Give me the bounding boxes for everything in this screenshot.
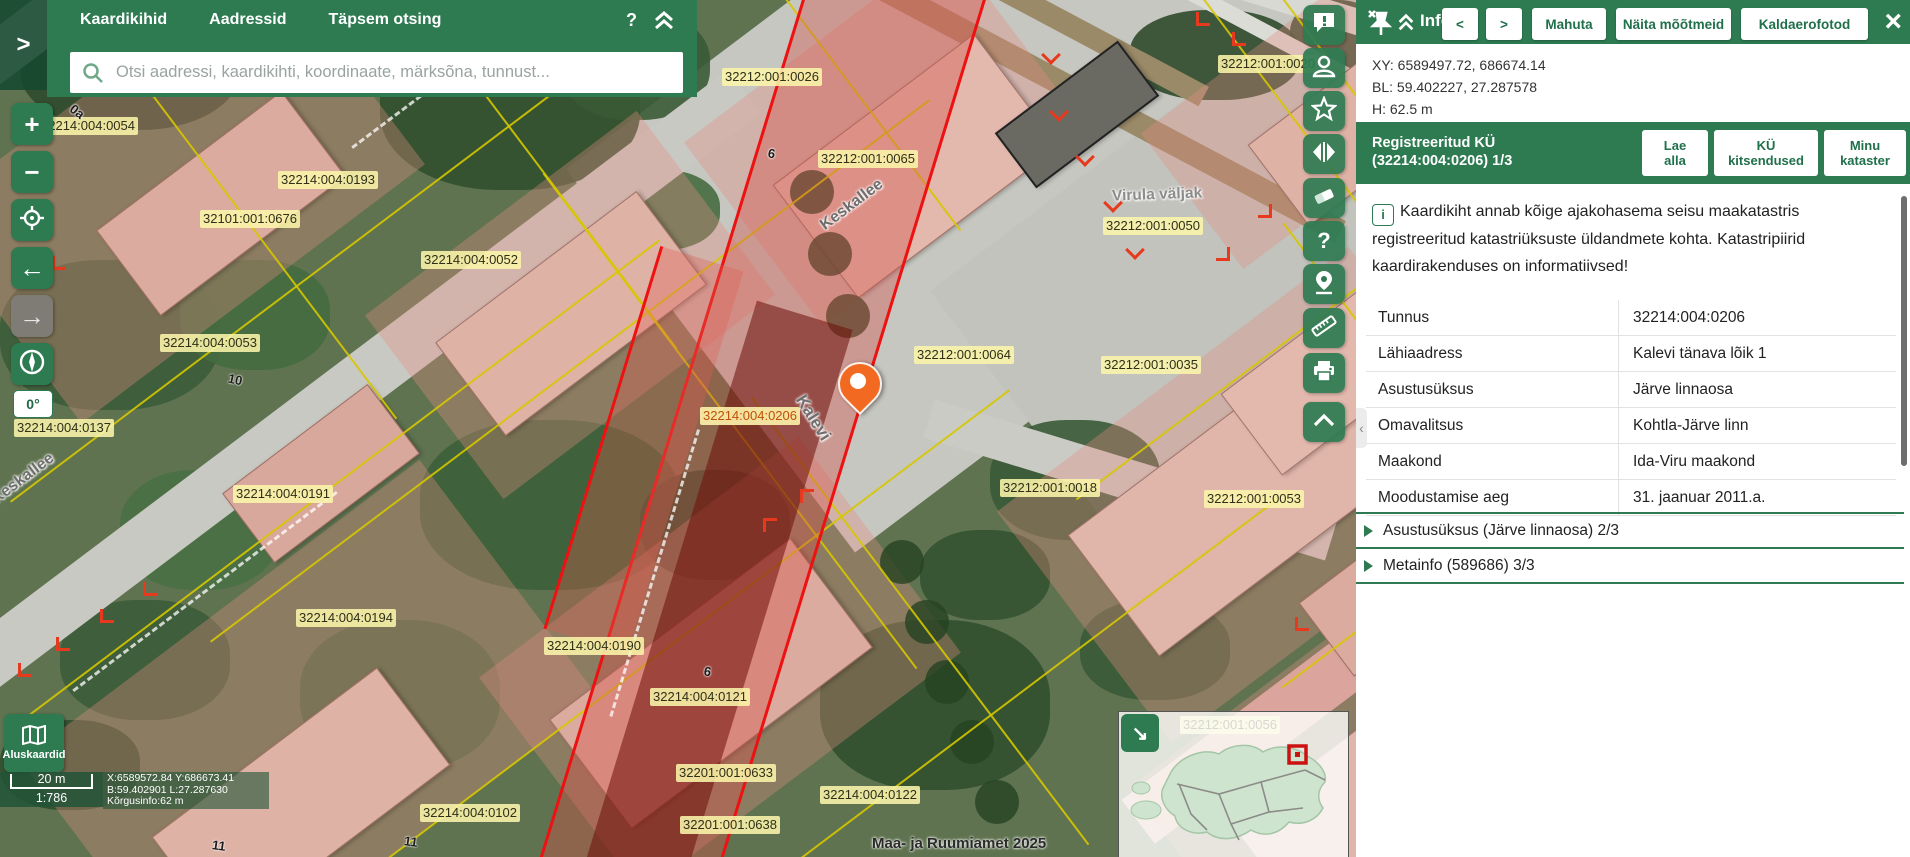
zoom-out-button[interactable]: − [11,151,53,193]
collapsed-section-row[interactable]: Metainfo (589686) 3/3 [1356,549,1904,584]
attribute-label: Tunnus [1366,309,1618,327]
search-icon [82,62,104,84]
table-row: OmavalitsusKohtla-Järve linn [1366,408,1896,444]
result-section-header: Registreeritud KÜ (32214:004:0206) 1/3 L… [1356,122,1910,184]
bookmarks-icon [1311,96,1337,127]
scale-ratio: 1:786 [0,791,103,805]
measure-icon [1310,312,1338,345]
close-panel-button[interactable]: × [1884,2,1902,42]
section-label: Metainfo (589686) 3/3 [1383,557,1535,575]
compass-icon [18,348,46,381]
table-row: AsustusüksusJärve linnaosa [1366,372,1896,408]
parcel-label: 32214:004:0191 [233,485,333,503]
direction-arrow [143,582,157,596]
k-kitsendused-button[interactable]: KÜkitsendused [1714,130,1818,176]
parcel-label: 32212:001:0050 [1103,217,1203,235]
collapse-nav-button[interactable] [653,10,675,37]
info-panel: Info < > MahutaNäita mõõtmeidKaldaerofot… [1356,0,1910,857]
parcel-label: 32212:001:0035 [1101,356,1201,374]
help-button[interactable]: ? [1303,221,1345,261]
result-title: Registreeritud KÜ (32214:004:0206) 1/3 [1372,134,1512,170]
feedback-button[interactable] [1303,5,1345,45]
info-panel-header: Info < > MahutaNäita mõõtmeidKaldaerofot… [1356,0,1910,44]
table-row: MaakondIda-Viru maakond [1366,444,1896,480]
collapsed-section-row[interactable]: Asustusüksus (Järve linnaosa) 2/3 [1356,512,1904,549]
point-info-icon [1311,269,1337,300]
attribute-label: Lähiaadress [1366,345,1618,363]
direction-arrow [1232,32,1246,46]
parcel-label: 32214:004:0122 [820,786,920,804]
user-icon [1311,53,1337,84]
panel-scrollbar[interactable] [1901,196,1907,466]
layer-info-note: iKaardikiht annab kõige ajakohasema seis… [1372,198,1882,280]
attributes-table: Tunnus32214:004:0206LähiaadressKalevi tä… [1366,300,1896,516]
section-label: Asustusüksus (Järve linnaosa) 2/3 [1383,522,1619,540]
history-forward-icon: → [19,303,45,329]
history-back-button[interactable]: ← [11,247,53,289]
map-attribution: Maa- ja Ruumiamet 2025 [872,835,1046,852]
zoom-in-button[interactable]: + [11,103,53,145]
point-info-button[interactable] [1303,264,1345,304]
direction-arrow [100,609,114,623]
chevron-right-icon: > [16,31,30,59]
info-icon: i [1372,204,1394,226]
zoom-out-icon: − [24,159,39,185]
main-menu: KaardikihidAadressidTäpsem otsing [47,0,697,29]
street-name: Keskallee [0,450,58,509]
collapse-all-icon[interactable] [1396,12,1416,32]
parcel-label: 32214:004:0194 [296,609,396,627]
näita-mõõtmeid-button[interactable]: Näita mõõtmeid [1616,8,1731,40]
parcel-label: 32101:001:0676 [200,210,300,228]
direction-arrow [52,256,66,270]
tree [925,660,969,704]
direction-arrow [800,489,814,503]
attribute-value: 31. jaanuar 2011.a. [1618,480,1896,515]
table-row: Moodustamise aeg31. jaanuar 2011.a. [1366,480,1896,516]
unpin-icon[interactable] [1366,9,1394,37]
basemap-button[interactable]: Aluskaardid [4,714,64,772]
attribute-label: Asustusüksus [1366,381,1618,399]
tree [975,780,1019,824]
basemap-label: Aluskaardid [3,749,66,761]
parcel-label: 32212:001:0018 [1000,479,1100,497]
direction-arrow [1216,247,1230,261]
compare-icon [1311,139,1337,170]
attribute-label: Omavalitsus [1366,417,1618,435]
direction-arrow [56,637,70,651]
place-name: Virula väljak [1112,184,1203,205]
parcel-label: 32212:001:0065 [818,150,918,168]
locate-icon [19,205,45,236]
history-back-icon: ← [19,255,45,281]
menu-item-kaardikihid[interactable]: Kaardikihid [80,11,167,29]
attribute-value: Kalevi tänava lõik 1 [1618,336,1896,371]
direction-arrow [763,518,777,532]
prev-result-button[interactable]: < [1442,8,1478,40]
search-input[interactable] [114,62,683,83]
attribute-value: 32214:004:0206 [1618,300,1896,335]
help-icon: ? [1317,228,1330,254]
parcel-label: 32214:004:0102 [420,804,520,822]
compass-button[interactable] [11,343,53,385]
parcel-label: 32214:004:0053 [160,334,260,352]
double-chevron-up-icon [653,10,675,32]
rotation-angle-badge[interactable]: 0° [13,390,53,418]
attribute-value: Kohtla-Järve linn [1618,408,1896,443]
minimap-expand-button[interactable]: ↘ [1121,714,1159,752]
parcel-label: 32212:001:0064 [914,346,1014,364]
parcel-label: 32212:001:0026 [722,68,822,86]
direction-arrow [1196,12,1210,26]
parcel-label: 32212:001:0053 [1204,490,1304,508]
parcel-label: 32201:001:0638 [680,816,780,834]
panel-collapse-handle[interactable]: ‹ [1356,408,1367,448]
parcel-label: 32214:004:0190 [544,637,644,655]
minu-kataster-button[interactable]: Minukataster [1824,130,1906,176]
table-row: Tunnus32214:004:0206 [1366,300,1896,336]
triangle-right-icon [1364,525,1373,537]
menu-item-täpsem-otsing[interactable]: Täpsem otsing [329,11,442,29]
mahuta-button[interactable]: Mahuta [1532,8,1606,40]
print-button[interactable] [1303,353,1345,393]
collapse-toolbar-button[interactable] [1303,402,1345,442]
menu-item-aadressid[interactable]: Aadressid [209,11,286,29]
house-number: 10 [227,371,244,389]
direction-arrow [18,663,32,677]
locate-button[interactable] [11,199,53,241]
zoom-in-icon: + [24,111,39,137]
attribute-label: Moodustamise aeg [1366,489,1618,507]
next-result-button[interactable]: > [1486,8,1522,40]
parcel-label-selected: 32214:004:0206 [700,407,800,425]
tree [905,600,949,644]
map-canvas[interactable]: 32214:004:005432214:004:019332101:001:06… [0,0,1356,857]
map-marker-pin [835,360,881,420]
collapse-toolbar-icon [1312,413,1336,432]
feedback-icon [1311,10,1337,41]
attribute-value: Ida-Viru maakond [1618,444,1896,479]
parcel-label: 32214:004:0121 [650,688,750,706]
house-number: 11 [403,833,419,850]
parcel-label: 32214:004:0052 [421,251,521,269]
help-button[interactable]: ? [626,10,637,31]
top-navigation: KaardikihidAadressidTäpsem otsing ? [47,0,697,97]
parcel-label: 32214:004:0137 [14,419,114,437]
print-icon [1311,358,1337,389]
parcel-label: 32201:001:0633 [676,764,776,782]
lae-alla-button[interactable]: Laealla [1642,130,1708,176]
house-number: 11 [211,837,227,854]
measure-button[interactable] [1303,308,1345,348]
erase-icon [1311,183,1337,214]
scale-bar: 20 m [10,774,93,789]
table-row: LähiaadressKalevi tänava lõik 1 [1366,336,1896,372]
expand-sidebar-button[interactable]: > [0,0,47,90]
direction-arrow [1295,617,1309,631]
scale-indicator: 20 m 1:786 [0,772,103,807]
attribute-value: Järve linnaosa [1618,372,1896,407]
triangle-right-icon [1364,560,1373,572]
user-button[interactable] [1303,48,1345,88]
erase-button[interactable] [1303,178,1345,218]
collapsed-sections: Asustusüksus (Järve linnaosa) 2/3Metainf… [1356,512,1904,584]
attribute-label: Maakond [1366,453,1618,471]
kaldaerofotod-button[interactable]: Kaldaerofotod [1741,8,1868,40]
compare-button[interactable] [1303,134,1345,174]
history-forward-button: → [11,295,53,337]
direction-arrow [1258,204,1272,218]
bookmarks-button[interactable] [1303,91,1345,131]
clicked-point-coordinates: XY: 6589497.72, 686674.14BL: 59.402227, … [1372,54,1546,120]
parcel-label: 32214:004:0193 [278,171,378,189]
cursor-coordinates: X:6589572.84 Y:686673.41B:59.402901 L:27… [103,772,269,809]
map-icon [22,725,46,745]
search-bar[interactable] [70,52,683,93]
